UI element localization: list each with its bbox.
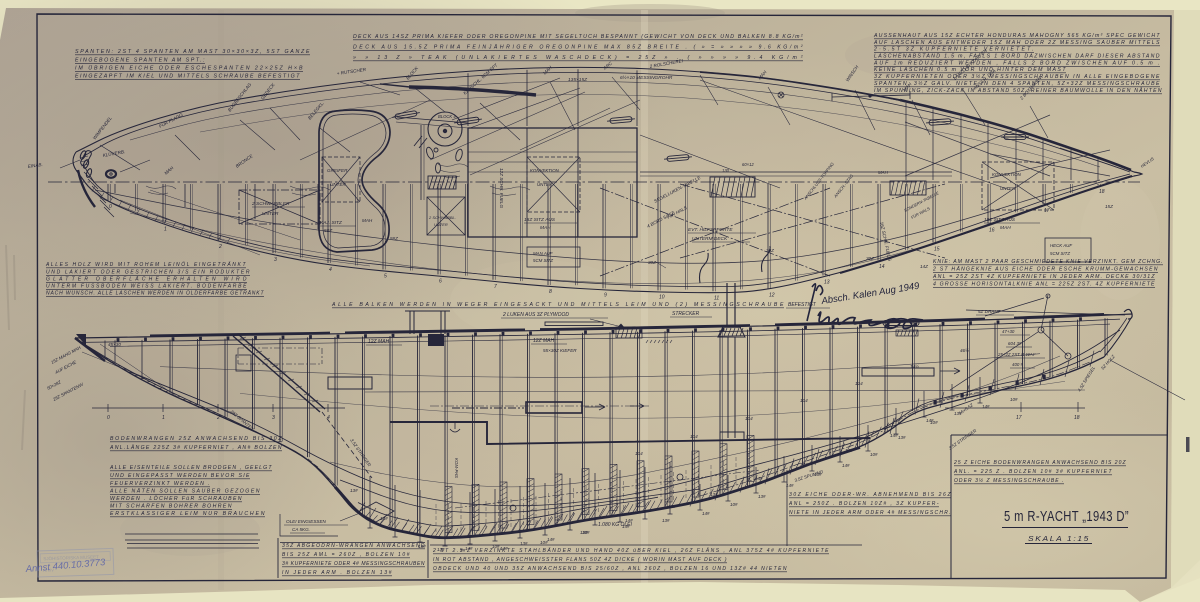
- svg-text:15Z: 15Z: [1105, 204, 1113, 209]
- svg-text:KOM-PAS: KOM-PAS: [454, 458, 459, 478]
- svg-text:» » 13 Z » TEAK (UNLAKIERTES W: » » 13 Z » TEAK (UNLAKIERTES WASCHDECK) …: [353, 55, 803, 61]
- svg-text:IN JEDER ARM . BOLZEN 13#: IN JEDER ARM . BOLZEN 13#: [282, 570, 392, 576]
- svg-text:ANL. = 225 Z . BOLZEN 10#: ANL. = 225 Z . BOLZEN 10# 3# KUPFERNIET: [953, 469, 1112, 475]
- svg-text:4: 4: [329, 267, 332, 273]
- svg-text:3Z KUPFERNIETEN ODER 3½Z MESSI: 3Z KUPFERNIETEN ODER 3½Z MESSINGSCHRAUBE…: [874, 73, 1160, 80]
- svg-text:46½: 46½: [960, 347, 969, 353]
- svg-text:30Z: 30Z: [648, 260, 656, 265]
- svg-text:10#: 10#: [730, 502, 738, 507]
- svg-text:14#: 14#: [890, 433, 898, 438]
- svg-text:5 m R-YACHT „1943 D”: 5 m R-YACHT „1943 D”: [1004, 509, 1129, 525]
- svg-text:3: 3: [272, 415, 275, 421]
- svg-text:EINGEBOGENE SPANTEN AM SPT.:: EINGEBOGENE SPANTEN AM SPT.:: [75, 58, 205, 64]
- svg-text:16: 16: [989, 228, 995, 234]
- svg-text:10#: 10#: [930, 420, 938, 425]
- svg-text:UNTER: UNTER: [330, 182, 347, 187]
- svg-text:NACH WUNSCH. ALLE LASCHEN WERD: NACH WUNSCH. ALLE LASCHEN WERDEN IN OLDE…: [46, 290, 264, 297]
- svg-text:25+2Z 2ST R-WAY: 25+2Z 2ST R-WAY: [997, 352, 1036, 357]
- svg-text:14#: 14#: [982, 404, 990, 409]
- svg-text:10#: 10#: [1010, 397, 1018, 402]
- svg-text:UNTER: UNTER: [262, 211, 279, 217]
- svg-text:50Z: 50Z: [324, 228, 333, 234]
- svg-text:11: 11: [714, 295, 719, 301]
- svg-text:6: 6: [439, 278, 442, 284]
- svg-text:2 ST HÄNGEKNIE AUS EICHE ODER: 2 ST HÄNGEKNIE AUS EICHE ODER ESCHE KRUM…: [932, 266, 1158, 273]
- svg-text:ANL = 250Z . BOLZEN 10Z# ,: ANL = 250Z . BOLZEN 10Z# , 3Z KUPFER-: [788, 501, 939, 507]
- svg-text:13#: 13#: [758, 494, 766, 499]
- svg-text:25 Z EICHE BODENWRANGEN ANW: 25 Z EICHE BODENWRANGEN ANWACHSEND BIS 2…: [953, 460, 1126, 466]
- svg-text:17: 17: [1016, 415, 1022, 421]
- svg-text:AUF 1m REDUZIERT WERDEN , FALL: AUF 1m REDUZIERT WERDEN , FALLS 2 BORD Z…: [873, 61, 1160, 67]
- svg-text:10: 10: [659, 294, 665, 300]
- svg-text:MIT SCHARFEN BOHRER BOHREN: MIT SCHARFEN BOHRER BOHREN: [110, 504, 232, 510]
- svg-text:18: 18: [1099, 189, 1105, 195]
- svg-text:LASCHENABSTAND 1.5 m, FALLS 1: LASCHENABSTAND 1.5 m, FALLS 1 BORD DAZWI…: [874, 54, 1160, 60]
- svg-text:UND EINGEPASST WERDEN BEVOR: UND EINGEPASST WERDEN BEVOR SIE: [110, 473, 250, 479]
- svg-text:10#: 10#: [540, 540, 548, 545]
- svg-text:4 GROSSE HORISONTALKNIE ANL =: 4 GROSSE HORISONTALKNIE ANL = 225Z 2ST. …: [933, 282, 1155, 288]
- svg-text:104: 104: [635, 451, 643, 456]
- svg-text:17: 17: [1044, 208, 1050, 214]
- svg-text:MAH: MAH: [362, 218, 373, 223]
- svg-text:13#: 13#: [662, 518, 670, 523]
- svg-text:15: 15: [934, 246, 940, 252]
- svg-text:9: 9: [604, 292, 607, 298]
- svg-text:604 3#: 604 3#: [1008, 341, 1022, 346]
- svg-text:3: 3: [274, 257, 277, 263]
- svg-text:130: 130: [722, 168, 730, 173]
- svg-text:14#: 14#: [625, 518, 633, 523]
- svg-text:14#: 14#: [547, 537, 555, 542]
- svg-text:20Z: 20Z: [765, 248, 774, 253]
- svg-text:2 ST 2.5 Z VERZINKTE STAHLB: 2 ST 2.5 Z VERZINKTE STAHLBÄNDER UND HAN…: [432, 547, 829, 554]
- svg-text:SKALA 1:15: SKALA 1:15: [1028, 534, 1090, 543]
- svg-text:30Z: 30Z: [866, 256, 874, 261]
- svg-text:8: 8: [549, 289, 552, 295]
- svg-text:MAH: MAH: [540, 225, 551, 231]
- svg-text:1: 1: [162, 415, 165, 421]
- svg-text:BIS 25Z AML = 260Z , BOLZEN: BIS 25Z AML = 260Z , BOLZEN 10#: [282, 552, 410, 558]
- svg-text:7: 7: [494, 284, 497, 290]
- svg-text:KEINE LASCHEN 0.5 m VOR UND HI: KEINE LASCHEN 0.5 m VOR UND HINTER DEM M…: [874, 67, 1066, 73]
- svg-text:12Z MAH: 12Z MAH: [368, 339, 390, 345]
- svg-text:NIETE IN JEDER ARM ODER 4: NIETE IN JEDER ARM ODER 4# MESSINGSCHR.: [789, 510, 951, 516]
- svg-text:FEUERVERZINKT WERDEN .: FEUERVERZINKT WERDEN .: [110, 481, 210, 487]
- svg-text:UNTERM DECK: UNTERM DECK: [692, 236, 728, 242]
- svg-text:BEFESTIGT: BEFESTIGT: [788, 302, 817, 308]
- svg-text:5CM SITZ: 5CM SITZ: [1050, 251, 1070, 256]
- svg-text:ALLE EISENTEILE SOLLEN BRODG: ALLE EISENTEILE SOLLEN BRODGEN , GEELGT: [109, 465, 272, 471]
- svg-text:18Z SITZ AUS: 18Z SITZ AUS: [984, 217, 1016, 223]
- svg-text:0: 0: [107, 415, 110, 421]
- svg-text:45×30: 45×30: [108, 342, 121, 347]
- svg-text:ERSTKLASSIGER LEIM NUR BRAU: ERSTKLASSIGER LEIM NUR BRAUCHEN: [110, 511, 265, 517]
- svg-text:HECK AUF: HECK AUF: [1050, 243, 1072, 248]
- svg-text:UNTER: UNTER: [537, 182, 553, 187]
- svg-text:12Z MAH: 12Z MAH: [533, 338, 555, 344]
- svg-text:SPANTEN, 3½Z GALV. NIETE IN DE: SPANTEN, 3½Z GALV. NIETE IN DEN 4 SPANTE…: [874, 80, 1160, 87]
- svg-text:2: 2: [216, 415, 220, 421]
- svg-text:14#: 14#: [702, 511, 710, 516]
- svg-text:MAH: MAH: [878, 170, 889, 175]
- svg-text:6½×10 MESSINGROHR: 6½×10 MESSINGROHR: [620, 74, 673, 81]
- svg-text:13#: 13#: [580, 530, 588, 535]
- svg-text:ODER 3½ Z MESSINGSCHRAUBE .: ODER 3½ Z MESSINGSCHRAUBE .: [954, 477, 1064, 484]
- svg-text:5Z DRAHT: 5Z DRAHT: [978, 309, 1002, 314]
- svg-text:5CM SITZ: 5CM SITZ: [533, 258, 553, 263]
- svg-text:OBDECK UND 40 UND 35Z ANWACH: OBDECK UND 40 UND 35Z ANWACHSEND BIS 25/…: [433, 566, 787, 572]
- svg-text:DECK AUS 14SZ PRIMA KIEFER ODE: DECK AUS 14SZ PRIMA KIEFER ODER OREGONPI…: [353, 34, 803, 40]
- svg-text:12: 12: [769, 293, 775, 299]
- svg-text:1: 1: [164, 227, 167, 233]
- svg-text:GREIFER: GREIFER: [327, 168, 348, 173]
- svg-text:124: 124: [855, 381, 863, 386]
- svg-text:18: 18: [1074, 415, 1080, 421]
- svg-text:CA 5KG.: CA 5KG.: [292, 527, 310, 532]
- svg-text:MAH: MAH: [1000, 225, 1011, 231]
- svg-text:104: 104: [745, 416, 753, 421]
- svg-text:55×30Z KIEFER: 55×30Z KIEFER: [543, 348, 577, 353]
- svg-text:12Z SCHN. FUELG: 12Z SCHN. FUELG: [499, 168, 504, 209]
- svg-text:2·5.5T 3Z KUPFERNIETE VERNIETE: 2·5.5T 3Z KUPFERNIETE VERNIETET.: [873, 47, 1034, 53]
- svg-text:AUF LASCHEN AUS ENTWEDER 15Z M: AUF LASCHEN AUS ENTWEDER 15Z MAH ODER 2Z…: [873, 40, 1160, 46]
- svg-text:EINGEZAPFT IM KIEL UND MITTELS: EINGEZAPFT IM KIEL UND MITTELS SCHRAUBE …: [75, 74, 300, 80]
- svg-text:14: 14: [879, 264, 885, 270]
- svg-text:STRECKER: STRECKER: [672, 311, 700, 317]
- svg-text:KONVEKTION: KONVEKTION: [530, 168, 560, 173]
- svg-text:47+30: 47+30: [1002, 329, 1015, 334]
- svg-text:SPANTEN: 2ST 4 SPANTEN AM MAST: SPANTEN: 2ST 4 SPANTEN AM MAST 30×30×3Z,…: [75, 49, 310, 55]
- svg-text:104: 104: [690, 434, 698, 439]
- svg-text:2 LUKEN AUS 3Z PLYWOOD: 2 LUKEN AUS 3Z PLYWOOD: [502, 312, 569, 318]
- svg-text:KAJ. SITZ: KAJ. SITZ: [320, 220, 343, 226]
- svg-text:13#: 13#: [350, 488, 358, 493]
- svg-text:5#Z: 5#Z: [390, 236, 398, 241]
- svg-text:10#: 10#: [800, 462, 808, 467]
- svg-text:AUSSENHAUT AUS 15Z ECHTER HOND: AUSSENHAUT AUS 15Z ECHTER HONDURAS MAHOG…: [873, 33, 1160, 39]
- svg-text:400 #: 400 #: [1012, 362, 1024, 367]
- svg-text:2 SCHWABBLER: 2 SCHWABBLER: [251, 201, 290, 207]
- svg-text:60×12: 60×12: [742, 162, 754, 167]
- svg-text:IN ROT ABSTAND , ANGESCHWEISS: IN ROT ABSTAND , ANGESCHWEISSTER FLANS 5…: [433, 557, 727, 563]
- svg-text:UNTERM FUSSBODEN WEISS LAKIERT: UNTERM FUSSBODEN WEISS LAKIERT. BODENFAR…: [46, 284, 247, 290]
- svg-text:ALLES HOLZ WIRD MIT ROHEM LEIN: ALLES HOLZ WIRD MIT ROHEM LEINÖL EINGETR…: [45, 261, 246, 268]
- svg-text:13#: 13#: [710, 492, 718, 497]
- svg-text:10#: 10#: [668, 504, 676, 509]
- svg-text:14#: 14#: [755, 476, 763, 481]
- svg-text:30Z EICHE ODER-WR. ABNEHMEND: 30Z EICHE ODER-WR. ABNEHMEND BIS 26Z: [789, 492, 951, 498]
- svg-text:5: 5: [384, 274, 387, 280]
- svg-text:18Z SITZ AUS: 18Z SITZ AUS: [524, 217, 556, 223]
- svg-text:EVT. HILFSPFORTE: EVT. HILFSPFORTE: [688, 227, 733, 233]
- svg-text:KONVEKTION: KONVEKTION: [992, 172, 1022, 177]
- svg-text:10#: 10#: [870, 452, 878, 457]
- svg-text:3# KUPFERNIETE ODER 4# MESSING: 3# KUPFERNIETE ODER 4# MESSINGSCHRAUBEN: [282, 561, 425, 567]
- svg-text:ANL = 25Z 2ST 4Z KUPFERNIETE I: ANL = 25Z 2ST 4Z KUPFERNIETE IN JEDER AR…: [932, 274, 1155, 280]
- svg-text:13#: 13#: [898, 435, 906, 440]
- svg-text:ANL.LÄNGE 225Z 3# KUPFERNIET: ANL.LÄNGE 225Z 3# KUPFERNIET , AN# BOLZE…: [109, 444, 282, 451]
- svg-text:UNTER: UNTER: [434, 222, 448, 227]
- svg-text:14Z: 14Z: [920, 264, 928, 269]
- svg-text:2 SCHWABBL.: 2 SCHWABBL.: [428, 215, 456, 220]
- svg-text:14#: 14#: [842, 463, 850, 468]
- svg-text:2: 2: [218, 244, 222, 250]
- svg-text:UNTER: UNTER: [1000, 186, 1016, 191]
- svg-text:ALLE NÄTEN SOLLEN SAUBER GE: ALLE NÄTEN SOLLEN SAUBER GEZOGEN: [109, 488, 260, 495]
- svg-text:BODENWRANGEN 25Z ANWACHSEND: BODENWRANGEN 25Z ANWACHSEND BIS 30Z: [110, 436, 282, 442]
- svg-text:WERDEN . LÖCHER FüR SCHRAUB: WERDEN . LÖCHER FüR SCHRAUBEN: [110, 495, 242, 502]
- svg-text:ALLE BALKEN WERDEN IN WEGE: ALLE BALKEN WERDEN IN WEGER EINGESACKT U…: [331, 302, 784, 308]
- svg-text:35Z ABGEODRN-WRANGEN ANWACHSE: 35Z ABGEODRN-WRANGEN ANWACHSEND: [282, 543, 425, 549]
- svg-text:OLEI EINGIESSEN: OLEI EINGIESSEN: [286, 519, 327, 524]
- svg-text:MAN AUF: MAN AUF: [533, 251, 553, 256]
- svg-text:BLOCK 4: BLOCK 4: [438, 114, 456, 119]
- svg-text:DECK AUS 15.5Z PRIMA FEINJÄHRI: DECK AUS 15.5Z PRIMA FEINJÄHRIGER OREGON…: [353, 44, 803, 51]
- svg-text:14#: 14#: [845, 448, 853, 453]
- svg-text:104: 104: [800, 398, 808, 403]
- svg-text:IM SPUNNING, ZICK-ZACK IN ABST: IM SPUNNING, ZICK-ZACK IN ABSTAND 50Z. R…: [874, 87, 1162, 94]
- svg-text:IM ÜBRIGEN EICHE ODER ESCHESPA: IM ÜBRIGEN EICHE ODER ESCHESPANTEN 22×25…: [75, 65, 303, 72]
- svg-text:13: 13: [824, 280, 830, 286]
- svg-text:135×15Z: 135×15Z: [568, 77, 588, 83]
